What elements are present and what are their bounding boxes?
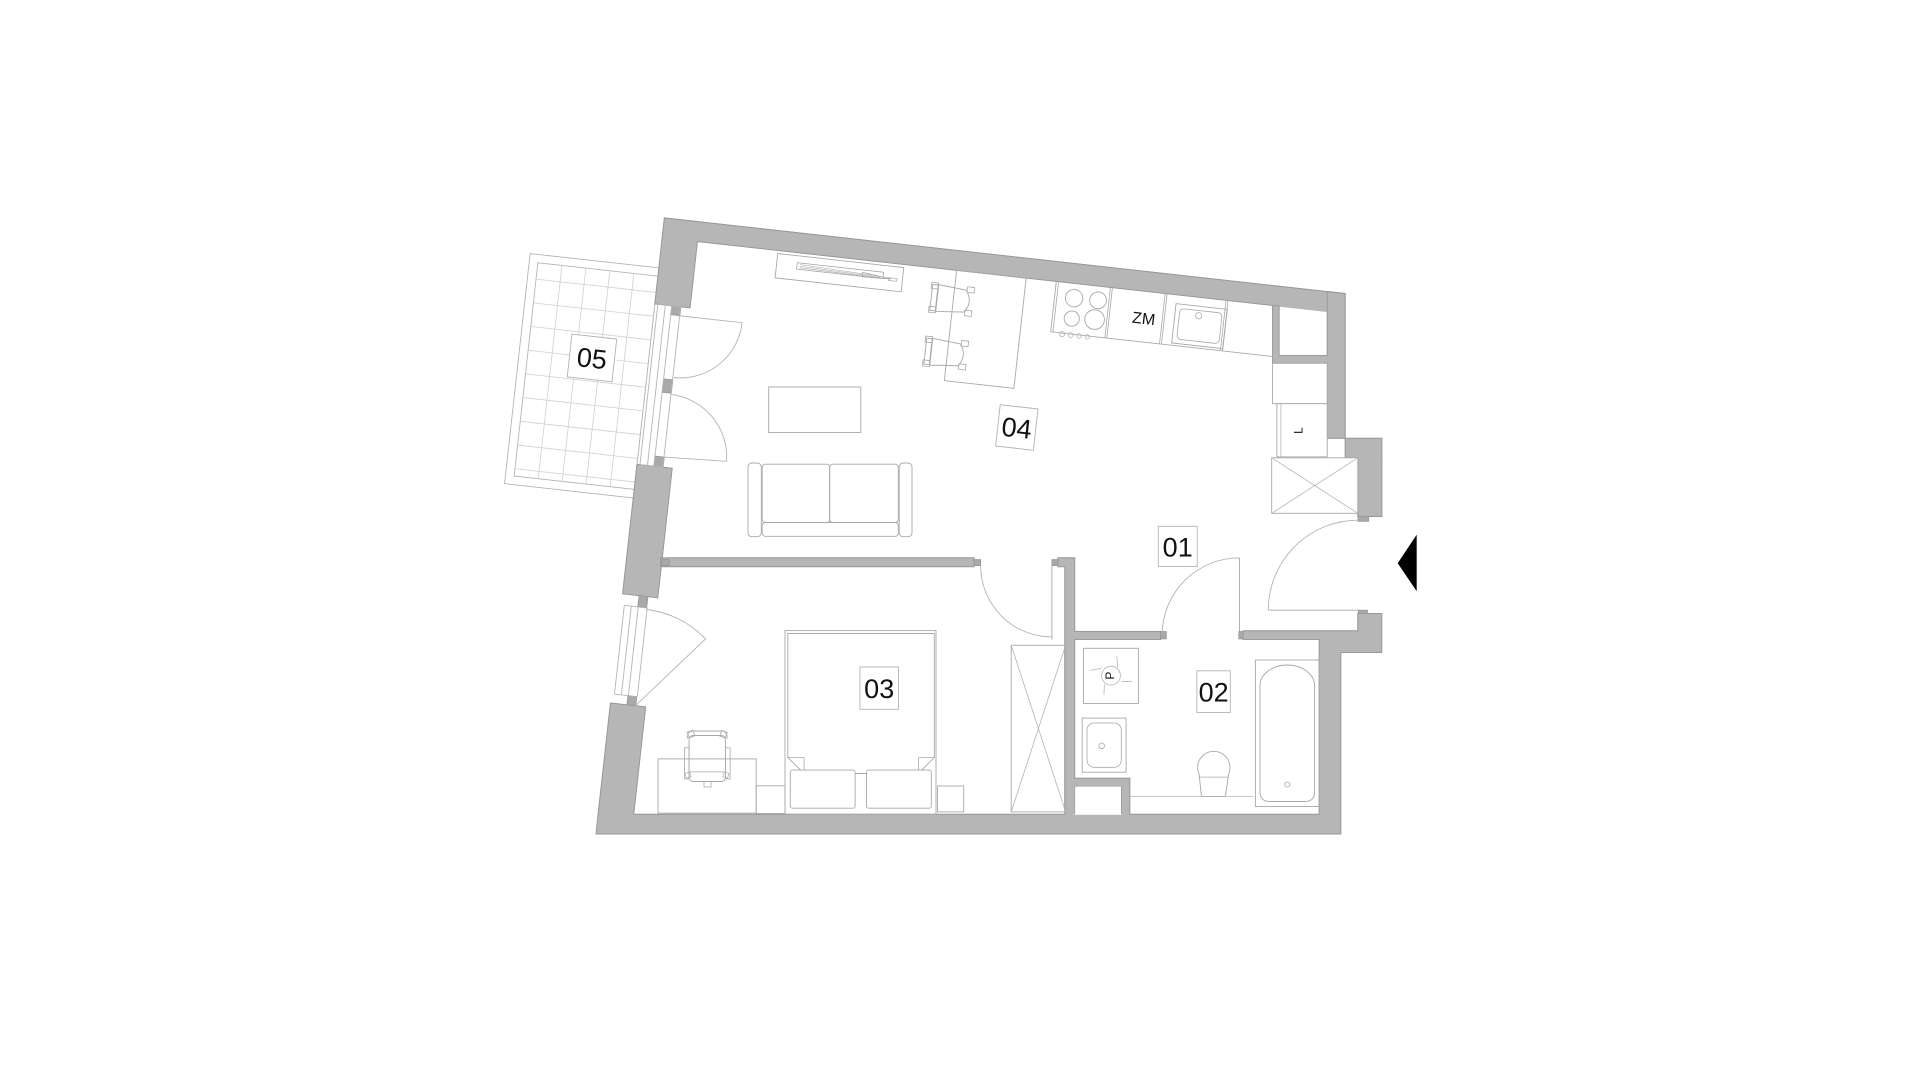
svg-text:04: 04: [1000, 412, 1033, 445]
svg-text:01: 01: [1163, 533, 1193, 563]
svg-text:P: P: [1103, 672, 1117, 680]
svg-text:03: 03: [864, 674, 894, 704]
svg-text:05: 05: [575, 342, 608, 375]
svg-text:ZM: ZM: [1131, 310, 1156, 329]
svg-text:L: L: [1292, 427, 1306, 434]
svg-text:02: 02: [1199, 678, 1229, 708]
